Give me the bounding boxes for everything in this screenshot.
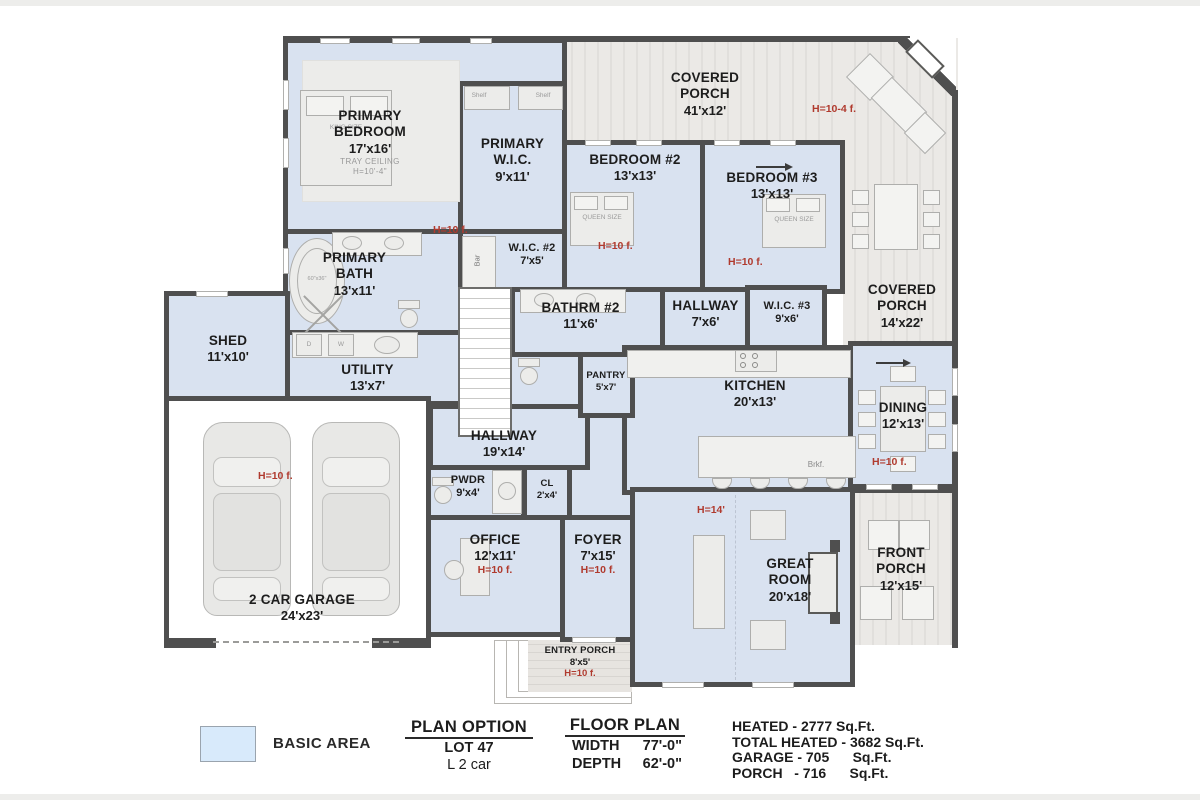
sink-icon bbox=[384, 236, 404, 250]
room-dims: 7'x5' bbox=[498, 255, 566, 268]
room-name: W.I.C. #2 bbox=[498, 242, 566, 255]
width-value: 77'-0" bbox=[643, 738, 682, 754]
room-label-hallway-small: HALLWAY 7'x6' bbox=[658, 298, 753, 330]
height-note: H=10 f. bbox=[872, 456, 907, 468]
room-label-pwdr: PWDR 9'x4' bbox=[436, 474, 500, 501]
room-dims: 9'x6' bbox=[752, 313, 822, 326]
kitchen-island bbox=[698, 436, 856, 478]
porch-table-icon bbox=[874, 184, 918, 250]
floor-plan-title: FLOOR PLAN bbox=[565, 716, 685, 737]
window bbox=[636, 140, 662, 146]
room-dims: 20'x13' bbox=[700, 394, 810, 410]
height-note: H=10 f. bbox=[598, 240, 633, 252]
burner bbox=[740, 362, 746, 368]
room-name: PWDR bbox=[436, 474, 500, 487]
room-label-wic2: W.I.C. #2 7'x5' bbox=[498, 242, 566, 269]
room-sub: H=10'-4" bbox=[320, 167, 420, 177]
window bbox=[866, 484, 892, 490]
armchair-icon bbox=[750, 620, 786, 650]
room-label-dining: DINING 12'x13' bbox=[858, 400, 948, 432]
window bbox=[283, 80, 289, 110]
window bbox=[585, 140, 611, 146]
room-label-covered-porch-top: COVERED PORCH 41'x12' bbox=[650, 70, 760, 119]
room-label-hallway-main: HALLWAY 19'x14' bbox=[448, 428, 560, 460]
stat-porch: PORCH - 716 Sq.Ft. bbox=[732, 766, 924, 782]
chair-icon bbox=[858, 434, 876, 449]
basic-area-label: BASIC AREA bbox=[273, 735, 371, 752]
window bbox=[283, 138, 289, 168]
window bbox=[752, 682, 794, 688]
chair-icon bbox=[890, 366, 916, 382]
dryer-label: D bbox=[303, 341, 315, 349]
stat-heated: HEATED - 2777 Sq.Ft. bbox=[732, 719, 924, 735]
stat-garage: GARAGE - 705 Sq.Ft. bbox=[732, 750, 924, 766]
stairs bbox=[458, 287, 512, 437]
chair-icon bbox=[923, 234, 940, 249]
plan-option-lot: LOT 47 bbox=[405, 740, 533, 756]
window bbox=[196, 291, 228, 297]
room-dims: 9'x4' bbox=[436, 487, 500, 500]
depth-label: DEPTH bbox=[572, 756, 621, 772]
room-dims: 13'x13' bbox=[712, 186, 832, 202]
room-label-garage: 2 CAR GARAGE 24'x23' bbox=[222, 592, 382, 624]
room-name: PRIMARY BATH bbox=[312, 250, 397, 283]
room-dims: 7'x6' bbox=[658, 314, 753, 330]
room-dims: 19'x14' bbox=[448, 444, 560, 460]
room-label-cl: CL 2'x4' bbox=[527, 478, 567, 501]
queen-bed-label: QUEEN SIZE bbox=[774, 216, 814, 224]
window bbox=[952, 368, 958, 396]
room-label-shed: SHED 11'x10' bbox=[178, 333, 278, 365]
shelf-label: Shelf bbox=[528, 92, 558, 100]
room-name: UTILITY bbox=[305, 362, 430, 378]
direction-arrow-icon bbox=[756, 166, 786, 168]
height-note: H=10 f. bbox=[440, 564, 550, 577]
plan-option-car: L 2 car bbox=[405, 757, 533, 773]
room-name: GREAT ROOM bbox=[754, 556, 826, 589]
room-name: 2 CAR GARAGE bbox=[222, 592, 382, 608]
room-dims: 24'x23' bbox=[222, 608, 382, 624]
toilet-icon bbox=[518, 358, 540, 367]
room-dims: 12'x15' bbox=[866, 578, 936, 594]
room-name: W.I.C. #3 bbox=[752, 300, 822, 313]
chair-icon bbox=[852, 212, 869, 227]
ceiling-line bbox=[735, 495, 736, 680]
sofa-icon bbox=[693, 535, 725, 629]
room-label-pantry: PANTRY 5'x7' bbox=[580, 370, 632, 393]
sink-icon bbox=[342, 236, 362, 250]
car-icon bbox=[203, 422, 291, 616]
room-name: DINING bbox=[858, 400, 948, 416]
room-name: FRONT PORCH bbox=[866, 545, 936, 578]
toilet-icon bbox=[400, 309, 418, 328]
height-note: H=10 f. bbox=[548, 564, 648, 577]
wall-segment bbox=[283, 36, 910, 42]
room-label-office: OFFICE 12'x11' H=10 f. bbox=[440, 532, 550, 577]
window bbox=[283, 248, 289, 274]
window bbox=[770, 140, 796, 146]
room-dims: 2'x4' bbox=[527, 490, 567, 502]
wall-segment bbox=[830, 612, 840, 624]
room-name: COVERED PORCH bbox=[856, 282, 948, 315]
direction-arrow-icon bbox=[876, 362, 904, 364]
page-bottom-border bbox=[0, 794, 1200, 800]
chair-icon bbox=[852, 190, 869, 205]
basic-area-swatch bbox=[200, 726, 256, 762]
room-label-kitchen: KITCHEN 20'x13' bbox=[700, 378, 810, 410]
room-name: PRIMARY BEDROOM bbox=[320, 108, 420, 141]
room-label-bedroom3: BEDROOM #3 13'x13' bbox=[712, 170, 832, 202]
room-dims: 5'x7' bbox=[580, 382, 632, 394]
room-name: OFFICE bbox=[440, 532, 550, 548]
room-name: CL bbox=[527, 478, 567, 490]
chair-icon bbox=[928, 434, 946, 449]
room-dims: 12'x13' bbox=[858, 416, 948, 432]
depth-value: 62'-0" bbox=[643, 756, 682, 772]
bar-label: Bar bbox=[473, 246, 482, 276]
room-dims: 11'x6' bbox=[518, 316, 643, 332]
room-name: BEDROOM #3 bbox=[712, 170, 832, 186]
stat-total-heated: TOTAL HEATED - 3682 Sq.Ft. bbox=[732, 735, 924, 751]
width-label: WIDTH bbox=[572, 738, 620, 754]
room-label-bathrm2: BATHRM #2 11'x6' bbox=[518, 300, 643, 332]
window bbox=[470, 38, 492, 44]
wall-segment bbox=[372, 638, 431, 648]
room-label-wic3: W.I.C. #3 9'x6' bbox=[752, 300, 822, 327]
height-note: H=10 f. bbox=[728, 256, 763, 268]
room-label-primary-bedroom: PRIMARY BEDROOM 17'x16' TRAY CEILING H=1… bbox=[320, 108, 420, 176]
room-label-great-room: GREAT ROOM 20'x18' bbox=[754, 556, 826, 605]
toilet-icon bbox=[520, 367, 538, 385]
breakfast-label: Brkf. bbox=[796, 460, 836, 470]
room-label-primary-wic: PRIMARY W.I.C. 9'x11' bbox=[465, 136, 560, 185]
burner bbox=[752, 362, 758, 368]
room-dims: 12'x11' bbox=[440, 548, 550, 564]
car-icon bbox=[312, 422, 400, 616]
room-name: HALLWAY bbox=[448, 428, 560, 444]
room-dims: 20'x18' bbox=[754, 589, 826, 605]
room-name: COVERED PORCH bbox=[650, 70, 760, 103]
plan-option-title: PLAN OPTION bbox=[405, 718, 533, 739]
room-name: SHED bbox=[178, 333, 278, 349]
room-dims: 7'x15' bbox=[548, 548, 648, 564]
room-label-covered-porch-right: COVERED PORCH 14'x22' bbox=[856, 282, 948, 331]
room-label-entry-porch: ENTRY PORCH 8'x5' H=10 f. bbox=[532, 645, 628, 680]
floor-plan-depth-row: DEPTH 62'-0" bbox=[572, 756, 682, 772]
chair-icon bbox=[852, 234, 869, 249]
chair-icon bbox=[923, 190, 940, 205]
height-note: H=14' bbox=[697, 504, 725, 516]
room-dims: 17'x16' bbox=[320, 141, 420, 157]
height-note: H=10-4 f. bbox=[812, 103, 856, 115]
room-dims: 8'x5' bbox=[532, 657, 628, 669]
room-name: PANTRY bbox=[580, 370, 632, 382]
room-dims: 13'x11' bbox=[312, 283, 397, 299]
room-label-primary-bath: PRIMARY BATH 13'x11' bbox=[312, 250, 397, 299]
room-label-utility: UTILITY 13'x7' bbox=[305, 362, 430, 394]
pillow-icon bbox=[604, 196, 628, 210]
height-note: H=10 f. bbox=[433, 224, 468, 236]
room-dims: 13'x7' bbox=[305, 378, 430, 394]
window bbox=[952, 424, 958, 452]
height-note: H=10 f. bbox=[532, 668, 628, 680]
room-dims: 11'x10' bbox=[178, 349, 278, 365]
wall-segment bbox=[164, 638, 216, 648]
toilet-icon bbox=[398, 300, 420, 309]
room-name: HALLWAY bbox=[658, 298, 753, 314]
floor-plan-width-row: WIDTH 77'-0" bbox=[572, 738, 682, 754]
burner bbox=[740, 353, 746, 359]
height-note: H=10 f. bbox=[258, 470, 293, 482]
room-name: PRIMARY W.I.C. bbox=[465, 136, 560, 169]
room-name: ENTRY PORCH bbox=[532, 645, 628, 657]
room-dims: 14'x22' bbox=[856, 315, 948, 331]
sink-icon bbox=[498, 482, 516, 500]
room-label-bedroom2: BEDROOM #2 13'x13' bbox=[575, 152, 695, 184]
wall-segment bbox=[830, 540, 840, 552]
window bbox=[714, 140, 740, 146]
page-top-border bbox=[0, 0, 1200, 6]
room-name: BATHRM #2 bbox=[518, 300, 643, 316]
burner bbox=[752, 353, 758, 359]
room-sub: TRAY CEILING bbox=[320, 157, 420, 167]
queen-bed-label: QUEEN SIZE bbox=[582, 214, 622, 222]
area-stats: HEATED - 2777 Sq.Ft. TOTAL HEATED - 3682… bbox=[732, 719, 924, 781]
room-name: KITCHEN bbox=[700, 378, 810, 394]
chair-icon bbox=[923, 212, 940, 227]
sink-icon bbox=[374, 336, 400, 354]
room-name: FOYER bbox=[548, 532, 648, 548]
window bbox=[912, 484, 938, 490]
shelf-label: Shelf bbox=[464, 92, 494, 100]
room-dims: 13'x13' bbox=[575, 168, 695, 184]
garage-door-line bbox=[213, 641, 399, 643]
wall-segment bbox=[848, 484, 958, 490]
window bbox=[662, 682, 704, 688]
room-dims: 41'x12' bbox=[650, 103, 760, 119]
armchair-icon bbox=[750, 510, 786, 540]
room-label-front-porch: FRONT PORCH 12'x15' bbox=[866, 545, 936, 594]
front-door bbox=[572, 637, 616, 643]
washer-label: W bbox=[335, 341, 347, 349]
window bbox=[320, 38, 350, 44]
floor-plan-canvas: KING SIZE Shelf Shelf Bar 60"x36" QUEEN … bbox=[0, 0, 1200, 800]
room-dims: 9'x11' bbox=[465, 169, 560, 185]
pillow-icon bbox=[574, 196, 598, 210]
room-name: BEDROOM #2 bbox=[575, 152, 695, 168]
window bbox=[392, 38, 420, 44]
room-label-foyer: FOYER 7'x15' H=10 f. bbox=[548, 532, 648, 577]
